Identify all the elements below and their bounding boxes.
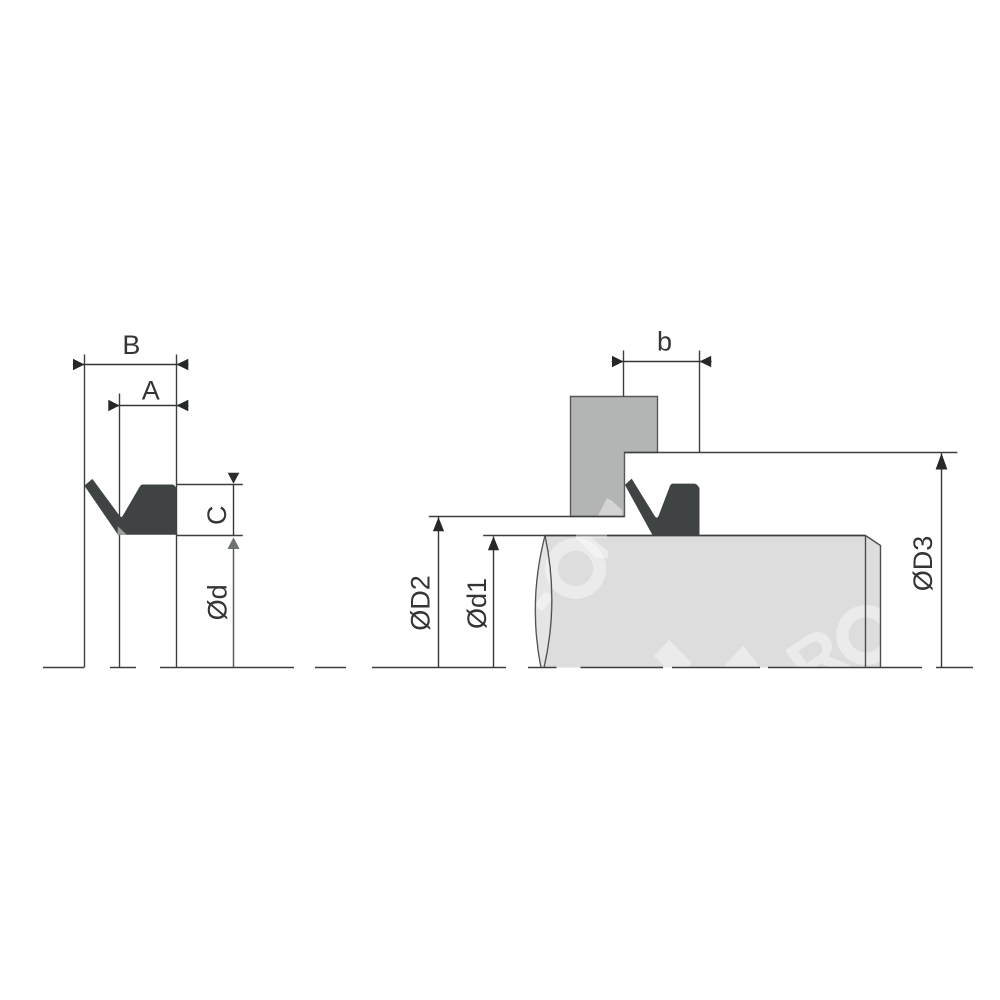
svg-text:Ød1: Ød1 [462, 578, 492, 629]
svg-text:A: A [142, 376, 160, 406]
svg-text:C: C [202, 505, 232, 525]
svg-text:B: B [122, 330, 140, 360]
svg-text:ØD3: ØD3 [908, 536, 938, 592]
svg-text:ØD2: ØD2 [406, 575, 436, 631]
svg-text:b: b [657, 326, 672, 356]
svg-text:Ød: Ød [203, 584, 233, 620]
